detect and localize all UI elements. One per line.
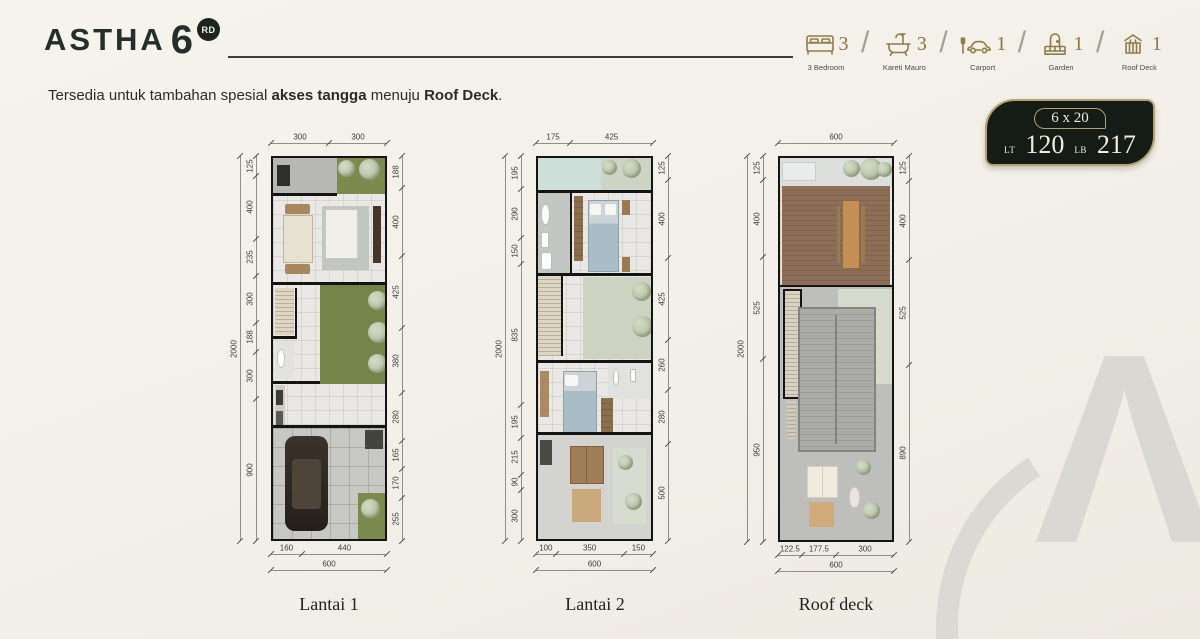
sink <box>541 232 549 247</box>
dimension-mark <box>747 156 748 542</box>
dining-chair <box>285 264 310 274</box>
dimension-label: 350 <box>583 544 596 553</box>
subtitle-bold-akses-tangga: akses tangga <box>271 87 366 104</box>
dimension-label: 900 <box>246 464 255 477</box>
plan-label-lantai-2: Lantai 2 <box>530 594 660 615</box>
subtitle-post: . <box>498 87 502 104</box>
living-sofa <box>325 209 359 259</box>
deck-table <box>842 200 860 269</box>
floor-plan-roof-deck: 1254005259502000125400525890600122.5177.… <box>778 156 894 542</box>
dimension-mark <box>536 143 653 144</box>
dimension-label: 125 <box>753 161 762 174</box>
dimension-mark <box>665 538 671 544</box>
separator-slash: / <box>861 25 869 61</box>
garden-icon <box>1039 31 1071 57</box>
nightstand <box>622 200 630 215</box>
dimension-label: 90 <box>511 478 520 487</box>
header-divider-line <box>228 56 793 58</box>
dimension-label: 2000 <box>737 340 746 358</box>
bathroom-label: Kareti Mauro <box>883 63 926 72</box>
dimension-label: 125 <box>658 161 667 174</box>
subtitle-bold-roof-deck: Roof Deck <box>424 87 498 104</box>
plant <box>863 502 880 519</box>
dimension-label: 600 <box>588 560 601 569</box>
desk <box>540 371 549 417</box>
separator-slash: / <box>939 25 947 61</box>
dimension-mark <box>891 552 897 558</box>
main-roof <box>798 307 876 452</box>
dimension-label: 100 <box>539 544 552 553</box>
dimension-mark <box>668 156 669 541</box>
tree <box>368 322 387 343</box>
dimension-label: 195 <box>511 166 520 179</box>
brand-name: ASTHA <box>44 20 166 60</box>
deck-bench <box>837 206 840 263</box>
dimension-label: 600 <box>829 133 842 142</box>
feature-carport-top: 1 <box>959 27 1006 61</box>
dimension-label: 235 <box>246 250 255 263</box>
entry-mat <box>365 430 383 449</box>
pillow <box>590 204 601 215</box>
bathroom-count: 3 <box>917 33 927 56</box>
roof-ridge-line <box>835 315 836 445</box>
sofa-cushion-split <box>822 466 823 498</box>
dimension-label: 170 <box>392 476 401 489</box>
wall <box>570 193 572 273</box>
plant <box>856 460 871 475</box>
wall <box>273 381 320 384</box>
dimension-label: 835 <box>511 328 520 341</box>
dimension-label: 280 <box>392 410 401 423</box>
dimension-label: 300 <box>351 133 364 142</box>
lantai-1-canvas <box>271 156 387 541</box>
dining-chair <box>285 204 310 214</box>
dimension-label: 600 <box>829 561 842 570</box>
dimension-label: 300 <box>858 545 871 554</box>
side-table <box>849 487 859 508</box>
dimension-label: 195 <box>511 415 520 428</box>
pillow <box>605 204 616 215</box>
feature-summary-row: 3 3 Bedroom / 3 Kareti Mauro / <box>793 27 1172 72</box>
bathtub <box>541 252 551 270</box>
sink <box>630 369 637 383</box>
dimension-label: 255 <box>392 513 401 526</box>
dimension-label: 188 <box>246 331 255 344</box>
bedroom-label: 3 Bedroom <box>808 63 845 72</box>
dimension-label: 300 <box>293 133 306 142</box>
garden-label: Garden <box>1049 63 1074 72</box>
dimension-label: 400 <box>753 212 762 225</box>
lt-label: LT <box>1004 145 1015 155</box>
lt-lb-row: LT120 LB217 <box>1004 132 1136 158</box>
garden-count: 1 <box>1074 33 1084 56</box>
dimension-label: 425 <box>605 133 618 142</box>
tree <box>359 159 380 180</box>
dimension-mark <box>399 538 405 544</box>
lot-size: 6 x 20 <box>1034 108 1106 129</box>
brand-rd-badge: RD <box>197 18 220 41</box>
roof-deck-label: Roof Deck <box>1122 63 1157 72</box>
lantai-2-canvas <box>536 156 653 541</box>
carport-icon <box>959 31 993 57</box>
dimension-label: 150 <box>632 544 645 553</box>
dimension-label: 440 <box>338 544 351 553</box>
sofa-cushion-split <box>586 446 587 484</box>
dimension-label: 290 <box>511 207 520 220</box>
dimension-mark <box>650 551 656 557</box>
dimension-label: 890 <box>899 447 908 460</box>
dimension-mark <box>402 156 403 541</box>
dimension-mark <box>909 156 910 542</box>
floor-plan-lantai-2: 1952901508351952159030020001254004252602… <box>536 156 653 541</box>
separator-slash: / <box>1096 25 1104 61</box>
feature-bathroom-top: 3 <box>882 27 927 61</box>
dimension-label: 165 <box>392 448 401 461</box>
dimension-label: 300 <box>511 509 520 522</box>
deck-bench <box>861 206 864 263</box>
dimension-mark <box>240 156 241 541</box>
tree <box>843 160 860 177</box>
dimension-label: 2000 <box>230 340 239 358</box>
separator-slash: / <box>1018 25 1026 61</box>
shoe-cabinet <box>277 165 289 186</box>
stairs <box>275 288 294 336</box>
dimension-label: 525 <box>899 306 908 319</box>
page: ASTHA 6 RD 3 3 Bedroom / <box>0 0 1200 639</box>
wall <box>273 193 337 196</box>
dimension-label: 400 <box>899 214 908 227</box>
dimension-mark <box>744 539 750 545</box>
dimension-mark <box>536 570 653 571</box>
dimension-mark <box>650 140 656 146</box>
dimension-mark <box>384 140 390 146</box>
dimension-label: 260 <box>658 358 667 371</box>
dimension-label: 500 <box>658 486 667 499</box>
stairs <box>538 276 561 356</box>
dimension-mark <box>521 156 522 541</box>
dimension-mark <box>518 538 524 544</box>
dimension-label: 400 <box>392 215 401 228</box>
dimension-label: 188 <box>392 165 401 178</box>
family-rug <box>572 489 601 521</box>
dimension-label: 280 <box>658 410 667 423</box>
dimension-label: 175 <box>546 133 559 142</box>
bedroom-count: 3 <box>839 33 849 56</box>
wardrobe <box>601 398 612 436</box>
dimension-label: 150 <box>511 244 520 257</box>
floor-plan-lantai-1: 1254002353001883009002000188400425380280… <box>271 156 387 541</box>
nightstand <box>622 257 630 272</box>
dimension-mark <box>650 567 656 573</box>
roof-deck-icon <box>1117 31 1149 57</box>
dimension-mark <box>778 143 894 144</box>
lb-label: LB <box>1074 145 1087 155</box>
dining-table <box>283 215 313 263</box>
tree <box>632 316 653 337</box>
dimension-mark <box>384 567 390 573</box>
brand-logo: ASTHA 6 RD <box>44 20 220 60</box>
lt-value: 120 <box>1025 132 1064 158</box>
bathtub-icon <box>882 31 914 57</box>
dimension-label: 125 <box>246 159 255 172</box>
dimension-label: 300 <box>246 292 255 305</box>
dimension-label: 425 <box>392 286 401 299</box>
stove <box>276 390 283 405</box>
wall <box>561 276 563 356</box>
roof-deck-count: 1 <box>1152 33 1162 56</box>
stair-void <box>540 440 551 465</box>
side-steps <box>787 401 796 439</box>
subtitle-mid: menuju <box>367 87 425 104</box>
dimension-label: 160 <box>280 544 293 553</box>
dimension-label: 400 <box>246 200 255 213</box>
balcony-roof <box>538 158 601 190</box>
dimension-label: 177.5 <box>809 545 829 554</box>
feature-roof-deck-top: 1 <box>1117 27 1162 61</box>
feature-bathroom: 3 Kareti Mauro <box>871 27 937 72</box>
carport-label: Carport <box>970 63 995 72</box>
lb-value: 217 <box>1097 132 1136 158</box>
dimension-label: 2000 <box>495 340 504 358</box>
tree <box>338 160 355 177</box>
dimension-label: 425 <box>658 292 667 305</box>
dimension-mark <box>384 551 390 557</box>
plan-label-lantai-1: Lantai 1 <box>264 594 394 615</box>
dimension-mark <box>271 570 387 571</box>
feature-garden: 1 Garden <box>1028 27 1094 72</box>
subtitle: Tersedia untuk tambahan spesial akses ta… <box>48 87 502 104</box>
dimension-label: 122.5 <box>780 545 800 554</box>
dimension-mark <box>891 140 897 146</box>
roof-deck-canvas <box>778 156 894 542</box>
dimension-mark <box>778 571 894 572</box>
tree <box>622 159 641 178</box>
tv-console <box>373 206 381 263</box>
dimension-label: 400 <box>658 212 667 225</box>
brand-number: 6 <box>171 20 193 60</box>
feature-garden-top: 1 <box>1039 27 1084 61</box>
feature-roof-deck: 1 Roof Deck <box>1106 27 1172 72</box>
dimension-mark <box>760 539 766 545</box>
lounge-rug <box>809 502 834 527</box>
dimension-mark <box>253 538 259 544</box>
wall <box>273 336 297 339</box>
car-roof <box>292 459 321 509</box>
pillow <box>565 375 577 386</box>
dimension-mark <box>906 539 912 545</box>
subtitle-pre: Tersedia untuk tambahan spesial <box>48 87 271 104</box>
dimension-label: 525 <box>753 301 762 314</box>
dimension-mark <box>763 156 764 542</box>
dimension-mark <box>505 156 506 541</box>
carport-count: 1 <box>996 33 1006 56</box>
dimension-label: 300 <box>246 369 255 382</box>
dimension-mark <box>237 538 243 544</box>
spec-badge: 6 x 20 LT120 LB217 <box>985 99 1155 166</box>
wall <box>295 288 297 336</box>
wardrobe <box>574 196 583 261</box>
skylight <box>782 162 816 181</box>
tree <box>632 282 651 301</box>
feature-bedroom: 3 3 Bedroom <box>793 27 859 72</box>
bed-icon <box>804 31 836 57</box>
dimension-label: 215 <box>511 450 520 463</box>
feature-bedroom-top: 3 <box>804 27 849 61</box>
dimension-label: 380 <box>392 354 401 367</box>
dimension-label: 125 <box>899 162 908 175</box>
plan-label-roof-deck: Roof deck <box>771 594 901 615</box>
dimension-mark <box>891 568 897 574</box>
dimension-mark <box>271 554 387 555</box>
dimension-label: 950 <box>753 444 762 457</box>
feature-carport: 1 Carport <box>950 27 1016 72</box>
dimension-label: 600 <box>322 560 335 569</box>
dimension-mark <box>502 538 508 544</box>
